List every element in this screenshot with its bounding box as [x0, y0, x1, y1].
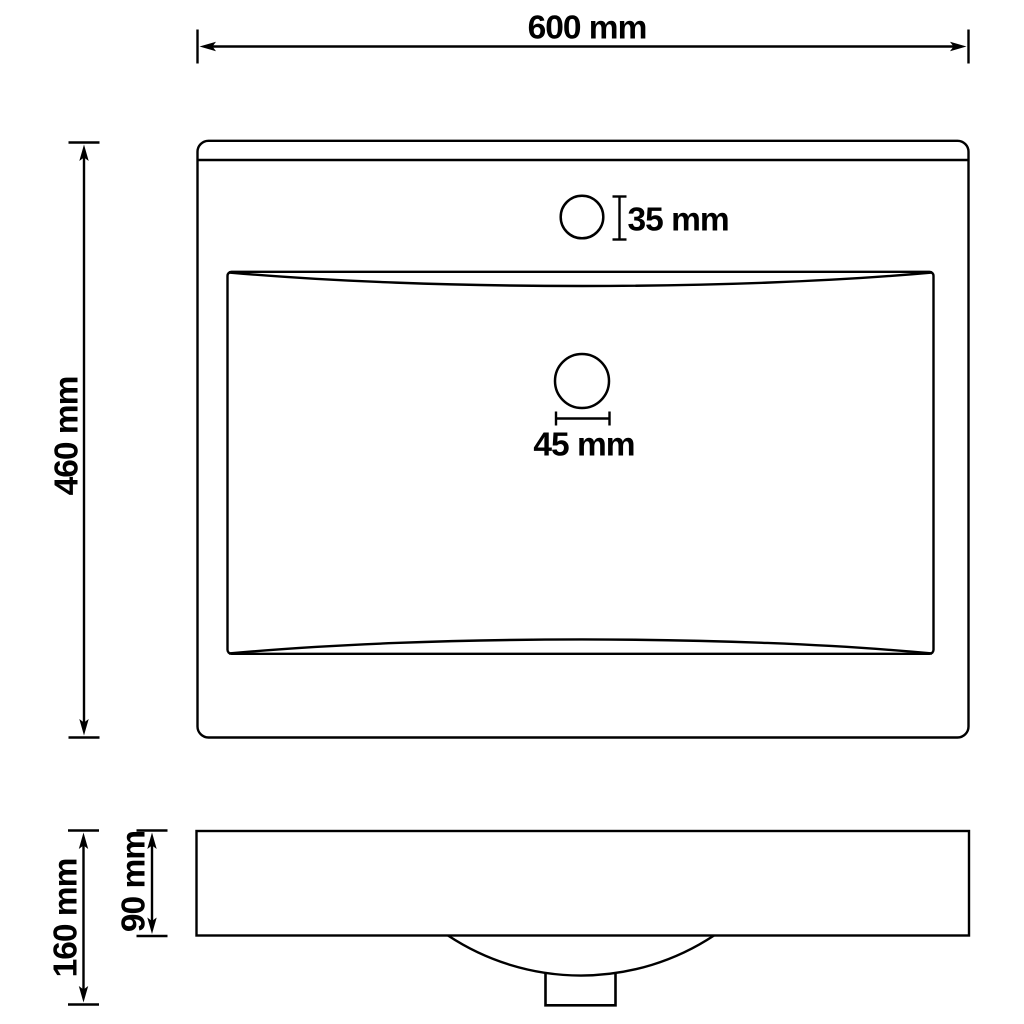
- svg-text:160 mm: 160 mm: [48, 859, 85, 978]
- svg-text:45 mm: 45 mm: [533, 427, 634, 464]
- svg-text:35 mm: 35 mm: [628, 202, 729, 239]
- svg-text:90 mm: 90 mm: [116, 831, 153, 932]
- svg-text:460 mm: 460 mm: [49, 377, 86, 496]
- svg-text:600 mm: 600 mm: [528, 10, 647, 47]
